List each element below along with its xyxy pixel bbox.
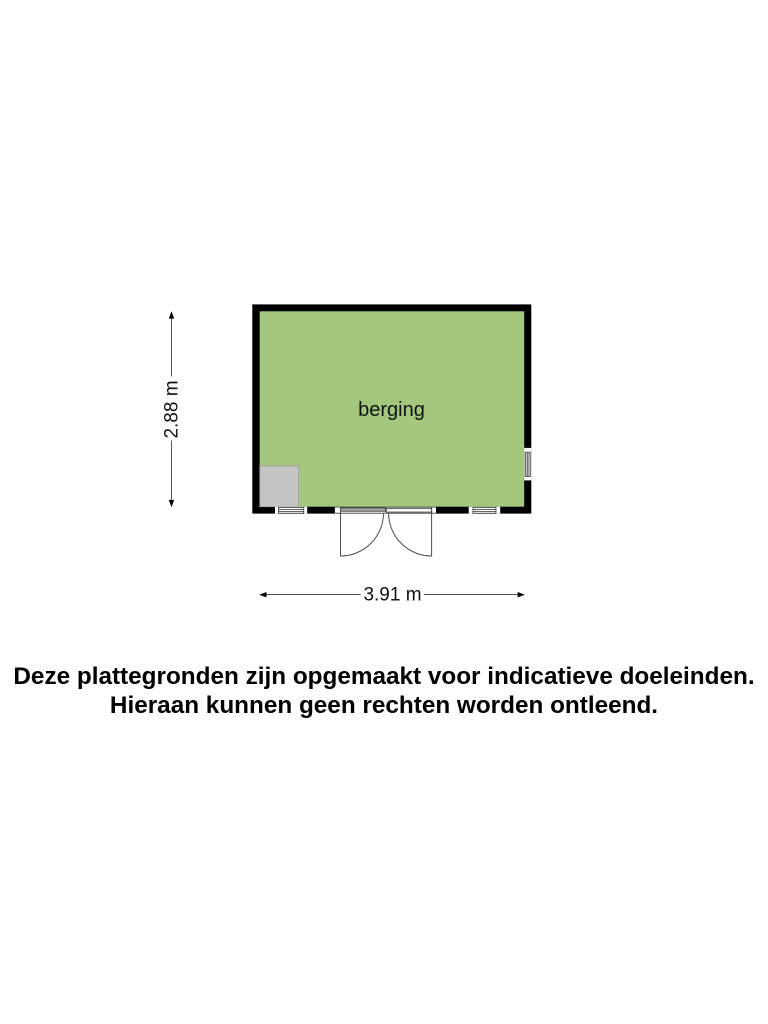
svg-text:2.88 m: 2.88 m [162,380,183,438]
svg-text:3.91 m: 3.91 m [363,584,421,605]
svg-text:berging: berging [358,399,425,421]
